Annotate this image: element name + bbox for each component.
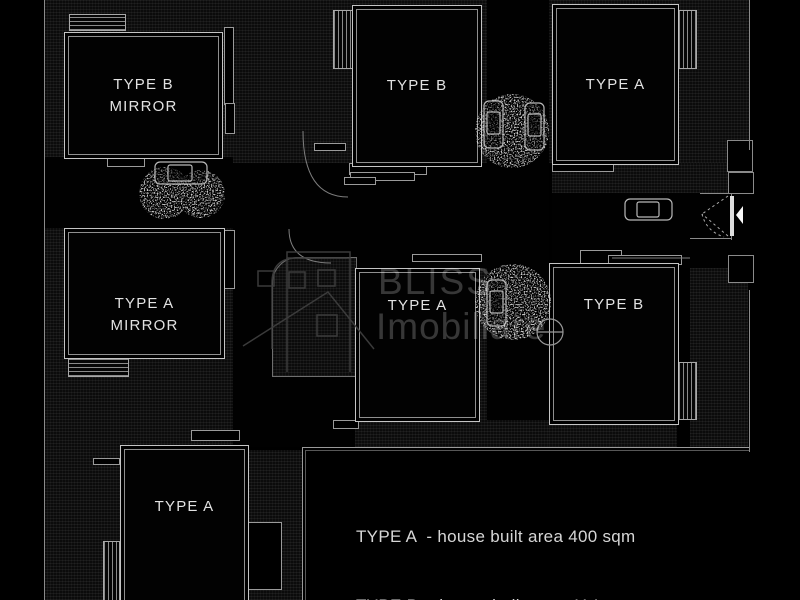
- porch-outline: [344, 177, 376, 185]
- pergola-hatch: [69, 14, 126, 31]
- driveway-area: [487, 268, 549, 420]
- block-label-line: TYPE B: [387, 75, 448, 97]
- legend: TYPE A - house built area 400 sqm TYPE B…: [356, 479, 637, 600]
- block-label-line: TYPE B: [109, 74, 177, 96]
- porch-outline: [224, 27, 234, 105]
- house-block-type-b-mirror: TYPE B MIRROR: [64, 32, 223, 159]
- pergola-hatch: [68, 357, 129, 377]
- hatched-island: [272, 257, 357, 377]
- hatched-ground: [487, 420, 549, 447]
- boundary-inset: [728, 255, 754, 283]
- porch-outline: [93, 458, 120, 465]
- block-label: TYPE B: [387, 75, 448, 97]
- block-label-line: TYPE A: [110, 293, 178, 315]
- porch-outline: [412, 254, 482, 262]
- block-label: TYPE A: [586, 74, 646, 96]
- road-area: [44, 157, 233, 228]
- block-label: TYPE A MIRROR: [110, 229, 178, 337]
- porch-outline: [314, 143, 346, 151]
- driveway-area: [487, 0, 549, 268]
- pergola-hatch: [103, 541, 120, 600]
- block-label-line: MIRROR: [110, 315, 178, 337]
- block-label-line: TYPE A: [586, 74, 646, 96]
- porch-outline: [248, 522, 282, 590]
- legend-line-type-b: TYPE B - house built area 414 sqm: [356, 594, 637, 600]
- porch-outline: [225, 103, 235, 134]
- block-label: TYPE A: [155, 446, 215, 518]
- block-label: TYPE B MIRROR: [109, 74, 177, 118]
- boundary-inset: [728, 172, 754, 194]
- house-block-type-b-top: TYPE B: [352, 5, 482, 167]
- boundary-inset: [727, 140, 753, 172]
- legend-line-type-a: TYPE A - house built area 400 sqm: [356, 525, 637, 548]
- site-plan: TYPE B MIRROR TYPE B TYPE A TYPE A MIRRO…: [0, 0, 800, 600]
- porch-outline: [191, 430, 240, 441]
- block-label: TYPE A: [388, 269, 448, 317]
- block-label-line: MIRROR: [109, 96, 177, 118]
- house-block-type-a-bottom: TYPE A: [120, 445, 249, 600]
- house-block-type-a-mid: TYPE A: [355, 268, 480, 422]
- block-label-line: TYPE B: [584, 294, 645, 316]
- block-label-line: TYPE A: [388, 295, 448, 317]
- house-block-type-a-mirror: TYPE A MIRROR: [64, 228, 225, 359]
- pergola-hatch: [333, 10, 354, 69]
- block-label-line: TYPE A: [155, 496, 215, 518]
- block-label: TYPE B: [584, 264, 645, 316]
- house-block-type-a-top: TYPE A: [552, 4, 679, 165]
- pergola-hatch: [678, 362, 697, 420]
- house-block-type-b-mid: TYPE B: [549, 263, 679, 425]
- pergola-hatch: [678, 10, 697, 69]
